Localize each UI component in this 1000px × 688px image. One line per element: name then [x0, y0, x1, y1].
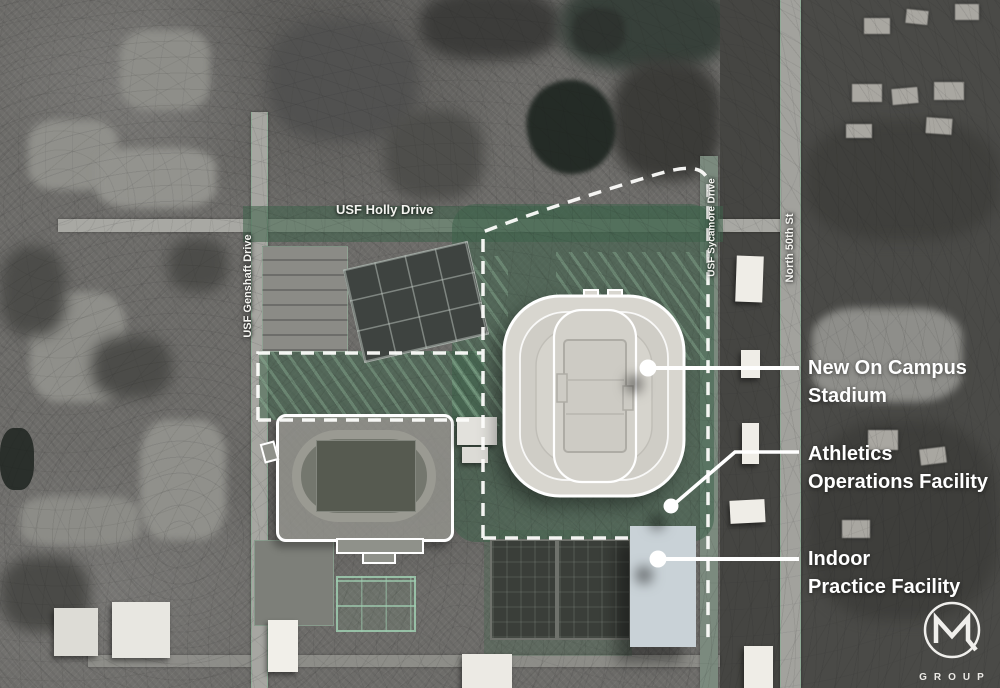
site-plan-map: USF Holly Drive USF Genshaft Drive USF S…: [0, 0, 1000, 688]
logo-m-monogram-icon: [936, 618, 976, 650]
callout-label-stadium: New On Campus Stadium: [808, 354, 967, 410]
street-label-holly: USF Holly Drive: [336, 202, 434, 217]
street-label-sycamore: USF Sycamore Drive: [707, 168, 718, 288]
mq-group-logo: GROUP: [916, 596, 988, 684]
callout-label-athletics-line1: Athletics: [808, 440, 988, 468]
logo-circle-icon: [925, 603, 979, 657]
callout-dot-stadium: [640, 360, 657, 377]
callout-label-indoor-line1: Indoor: [808, 545, 960, 573]
callout-label-indoor: Indoor Practice Facility: [808, 545, 960, 601]
callout-dot-athletics: [664, 499, 679, 514]
callout-label-stadium-line1: New On Campus: [808, 354, 967, 382]
street-label-north-50th: North 50th St: [784, 203, 796, 293]
callout-label-athletics: Athletics Operations Facility: [808, 440, 988, 496]
street-label-genshaft: USF Genshaft Drive: [242, 221, 254, 351]
site-boundary-dashed: [258, 168, 708, 644]
callout-dot-indoor: [650, 551, 667, 568]
callout-label-athletics-line2: Operations Facility: [808, 468, 988, 496]
leader-athletics: [672, 452, 799, 506]
logo-group-text: GROUP: [919, 672, 988, 683]
callout-label-stadium-line2: Stadium: [808, 382, 967, 410]
callout-leader-lines: [656, 368, 799, 559]
